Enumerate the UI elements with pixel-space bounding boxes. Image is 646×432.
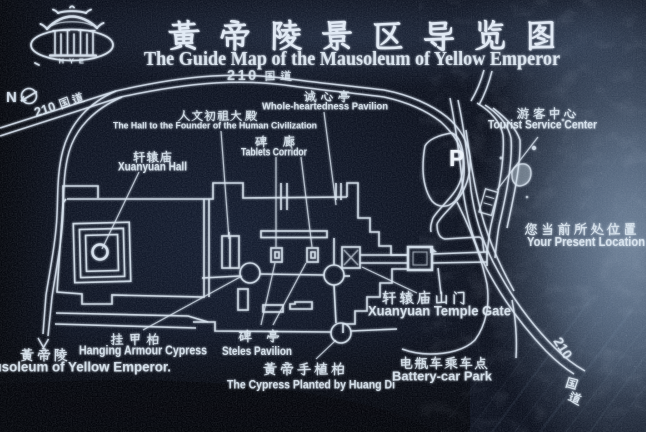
svg-text:The Guide Map of the Mausoleum: The Guide Map of the Mausoleum of Yellow…	[144, 49, 560, 70]
svg-text:N: N	[6, 89, 17, 106]
svg-text:Xuanyuan Hall: Xuanyuan Hall	[118, 162, 187, 174]
svg-text:Tourist Service Center: Tourist Service Center	[488, 118, 597, 132]
svg-text:The Hall to the Founder of the: The Hall to the Founder of the Human Civ…	[113, 121, 317, 132]
svg-text:Your Present Location: Your Present Location	[527, 234, 645, 249]
svg-text:Tablets Corridor: Tablets Corridor	[241, 147, 308, 159]
svg-text:Mausoleum of Yellow Emperor.: Mausoleum of Yellow Emperor.	[0, 360, 171, 375]
svg-text:P: P	[449, 145, 464, 171]
svg-text:Whole-heartedness Pavilion: Whole-heartedness Pavilion	[262, 102, 388, 113]
svg-text:The Cypress Planted by Huang D: The Cypress Planted by Huang Di	[227, 378, 395, 392]
svg-text:Hanging Armour Cypress: Hanging Armour Cypress	[79, 344, 207, 358]
svg-text:Steles Pavilion: Steles Pavilion	[222, 346, 292, 358]
svg-text:H Y E: H Y E	[59, 57, 86, 66]
svg-text:210: 210	[227, 68, 259, 84]
svg-text:Battery-car Park: Battery-car Park	[392, 369, 493, 384]
svg-text:Xuanyuan Temple Gate: Xuanyuan Temple Gate	[368, 304, 511, 319]
